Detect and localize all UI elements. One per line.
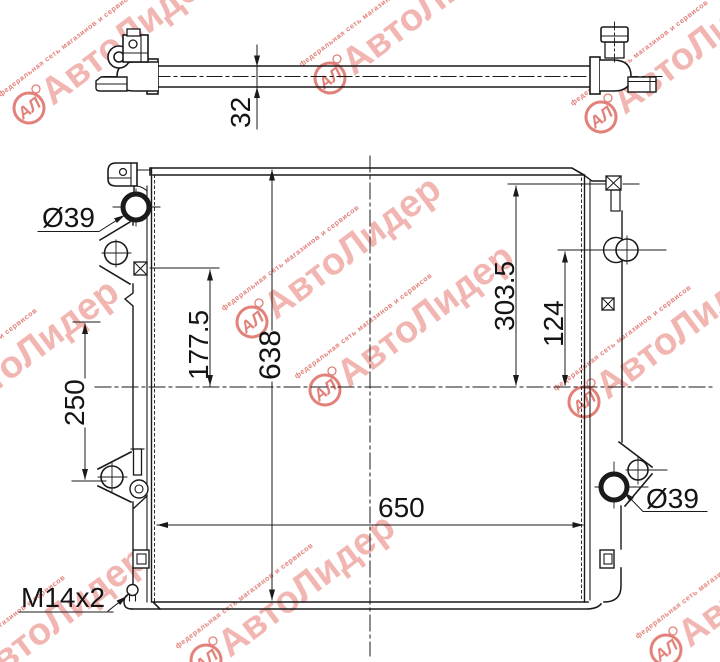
radiator-drawing-page: АЛ федеральная сеть магазинов и сервисов… [0,0,720,662]
right-top-offset-label: 303.5 [489,261,520,331]
watermark-tile: АЛ федеральная сеть магазинов и сервисов… [297,0,527,105]
watermark-tile: АЛ федеральная сеть магазинов и сервисов… [0,0,226,135]
left-tank-edge-mid [125,284,133,450]
drain-plug-label: M14x2 [21,582,105,613]
upper-right-mount-crosshair [613,236,641,264]
callout-outlet-diameter: Ø39 [624,483,707,514]
left-top-bracket [108,163,137,186]
outlet-pipe-side [628,77,656,92]
watermark-brand: АвтоЛидер [588,248,720,408]
watermark-brand: АвтоЛидер [210,506,403,662]
left-bracket-tab [127,29,140,36]
core-thickness-label: 32 [225,97,256,128]
left-tank-bottom-corner [124,594,132,609]
bottom-beam-outer [132,604,601,609]
inlet-offset-label: 177.5 [183,310,214,380]
right-fitting-body [600,60,631,91]
mount-stud [134,449,142,475]
right-hole-offset-label: 124 [538,300,569,347]
right-tank-bottom-corner [604,568,621,602]
core-width-label: 650 [378,492,425,523]
core-height-label: 638 [254,330,287,380]
outlet-port [601,474,627,500]
inlet-diameter-label: Ø39 [42,202,95,233]
outlet-diameter-label: Ø39 [646,483,699,514]
left-lower-clip [133,550,149,568]
stud-nut [130,480,148,498]
left-holes-span-label: 250 [59,379,90,426]
dimension-core-height: 638 [254,170,287,601]
left-bracket [123,35,148,62]
watermark-tile: АЛ федеральная сеть магазинов и сервисов… [173,495,403,662]
top-beam [150,168,584,175]
dimension-inlet-to-centerline: 177.5 [150,268,219,386]
right-tank-slot [611,190,620,211]
inlet-port [123,194,149,220]
watermark-tile: АЛ федеральная сеть магазинов и сервисов… [551,237,720,429]
callout-inlet-diameter: Ø39 [38,202,125,233]
right-flange [590,57,600,94]
